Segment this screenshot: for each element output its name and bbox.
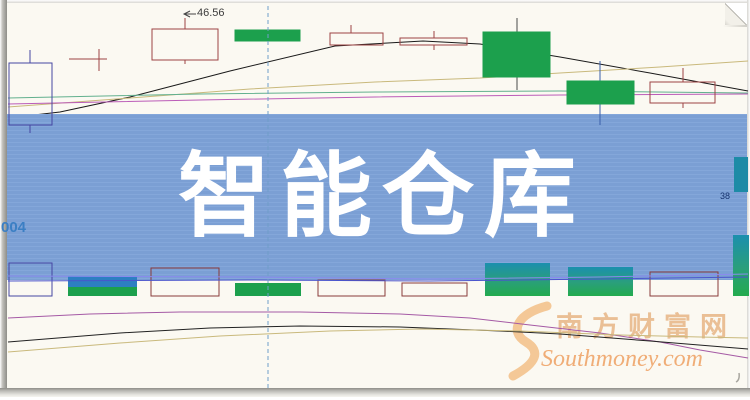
volume-bar-hollow <box>402 283 467 296</box>
volume-bar-hollow <box>9 263 52 296</box>
candle-down-body <box>567 81 634 104</box>
stock-code-fragment: 004 <box>1 220 26 235</box>
candle-up-body <box>400 38 467 45</box>
volume-bar-gradient <box>568 267 633 296</box>
volume-bar-gradient <box>733 235 749 296</box>
candle-up-body <box>152 29 218 60</box>
candle-down-body <box>483 32 550 77</box>
teal-tag-rect <box>734 157 748 192</box>
candle-up-body <box>650 82 715 103</box>
candle-up-body <box>330 33 383 45</box>
volume-bar-blue-part <box>68 276 137 287</box>
price-high-label: 46.56 <box>197 8 225 19</box>
right-edge-fragment: 38 <box>720 192 730 201</box>
volume-bar-hollow <box>318 280 385 296</box>
chart-overlay-svg <box>0 0 750 400</box>
bottom-page-curl-icon <box>736 373 739 382</box>
volume-bar-hollow <box>151 268 219 296</box>
volume-bar-green-part <box>68 287 137 296</box>
stock-chart-screenshot: { "banner": { "title": "智能仓库", "bg_color… <box>0 0 750 400</box>
candle-up-body <box>9 63 52 125</box>
